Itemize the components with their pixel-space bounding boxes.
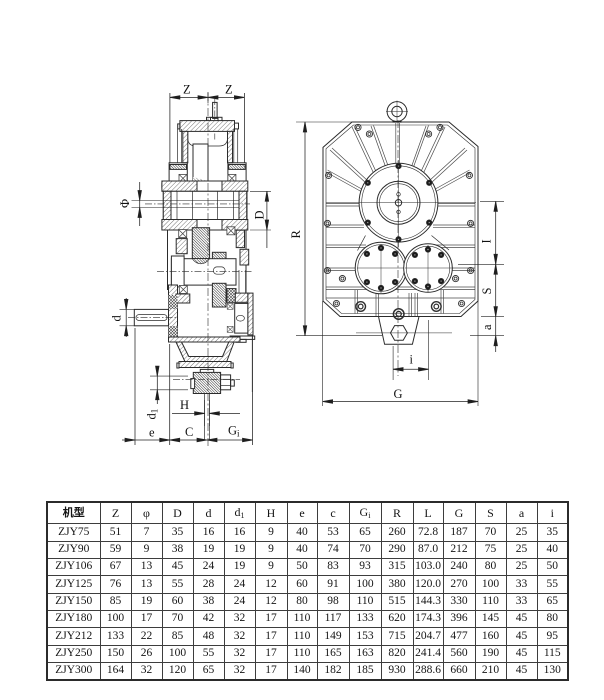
- svg-text:i: i: [410, 353, 414, 367]
- svg-text:Gi: Gi: [228, 424, 240, 439]
- svg-text:a: a: [480, 324, 494, 330]
- svg-text:Z: Z: [183, 83, 191, 97]
- svg-text:G: G: [394, 387, 403, 401]
- svg-text:H: H: [180, 398, 189, 412]
- svg-text:d1: d1: [145, 409, 160, 420]
- svg-text:Z: Z: [225, 83, 233, 97]
- svg-text:e: e: [149, 426, 155, 440]
- svg-text:R: R: [289, 230, 303, 239]
- svg-text:d: d: [110, 315, 124, 322]
- svg-text:I: I: [480, 239, 494, 243]
- svg-text:Φ: Φ: [118, 199, 132, 208]
- svg-text:D: D: [253, 210, 267, 219]
- svg-text:C: C: [185, 425, 193, 439]
- svg-text:S: S: [480, 288, 494, 295]
